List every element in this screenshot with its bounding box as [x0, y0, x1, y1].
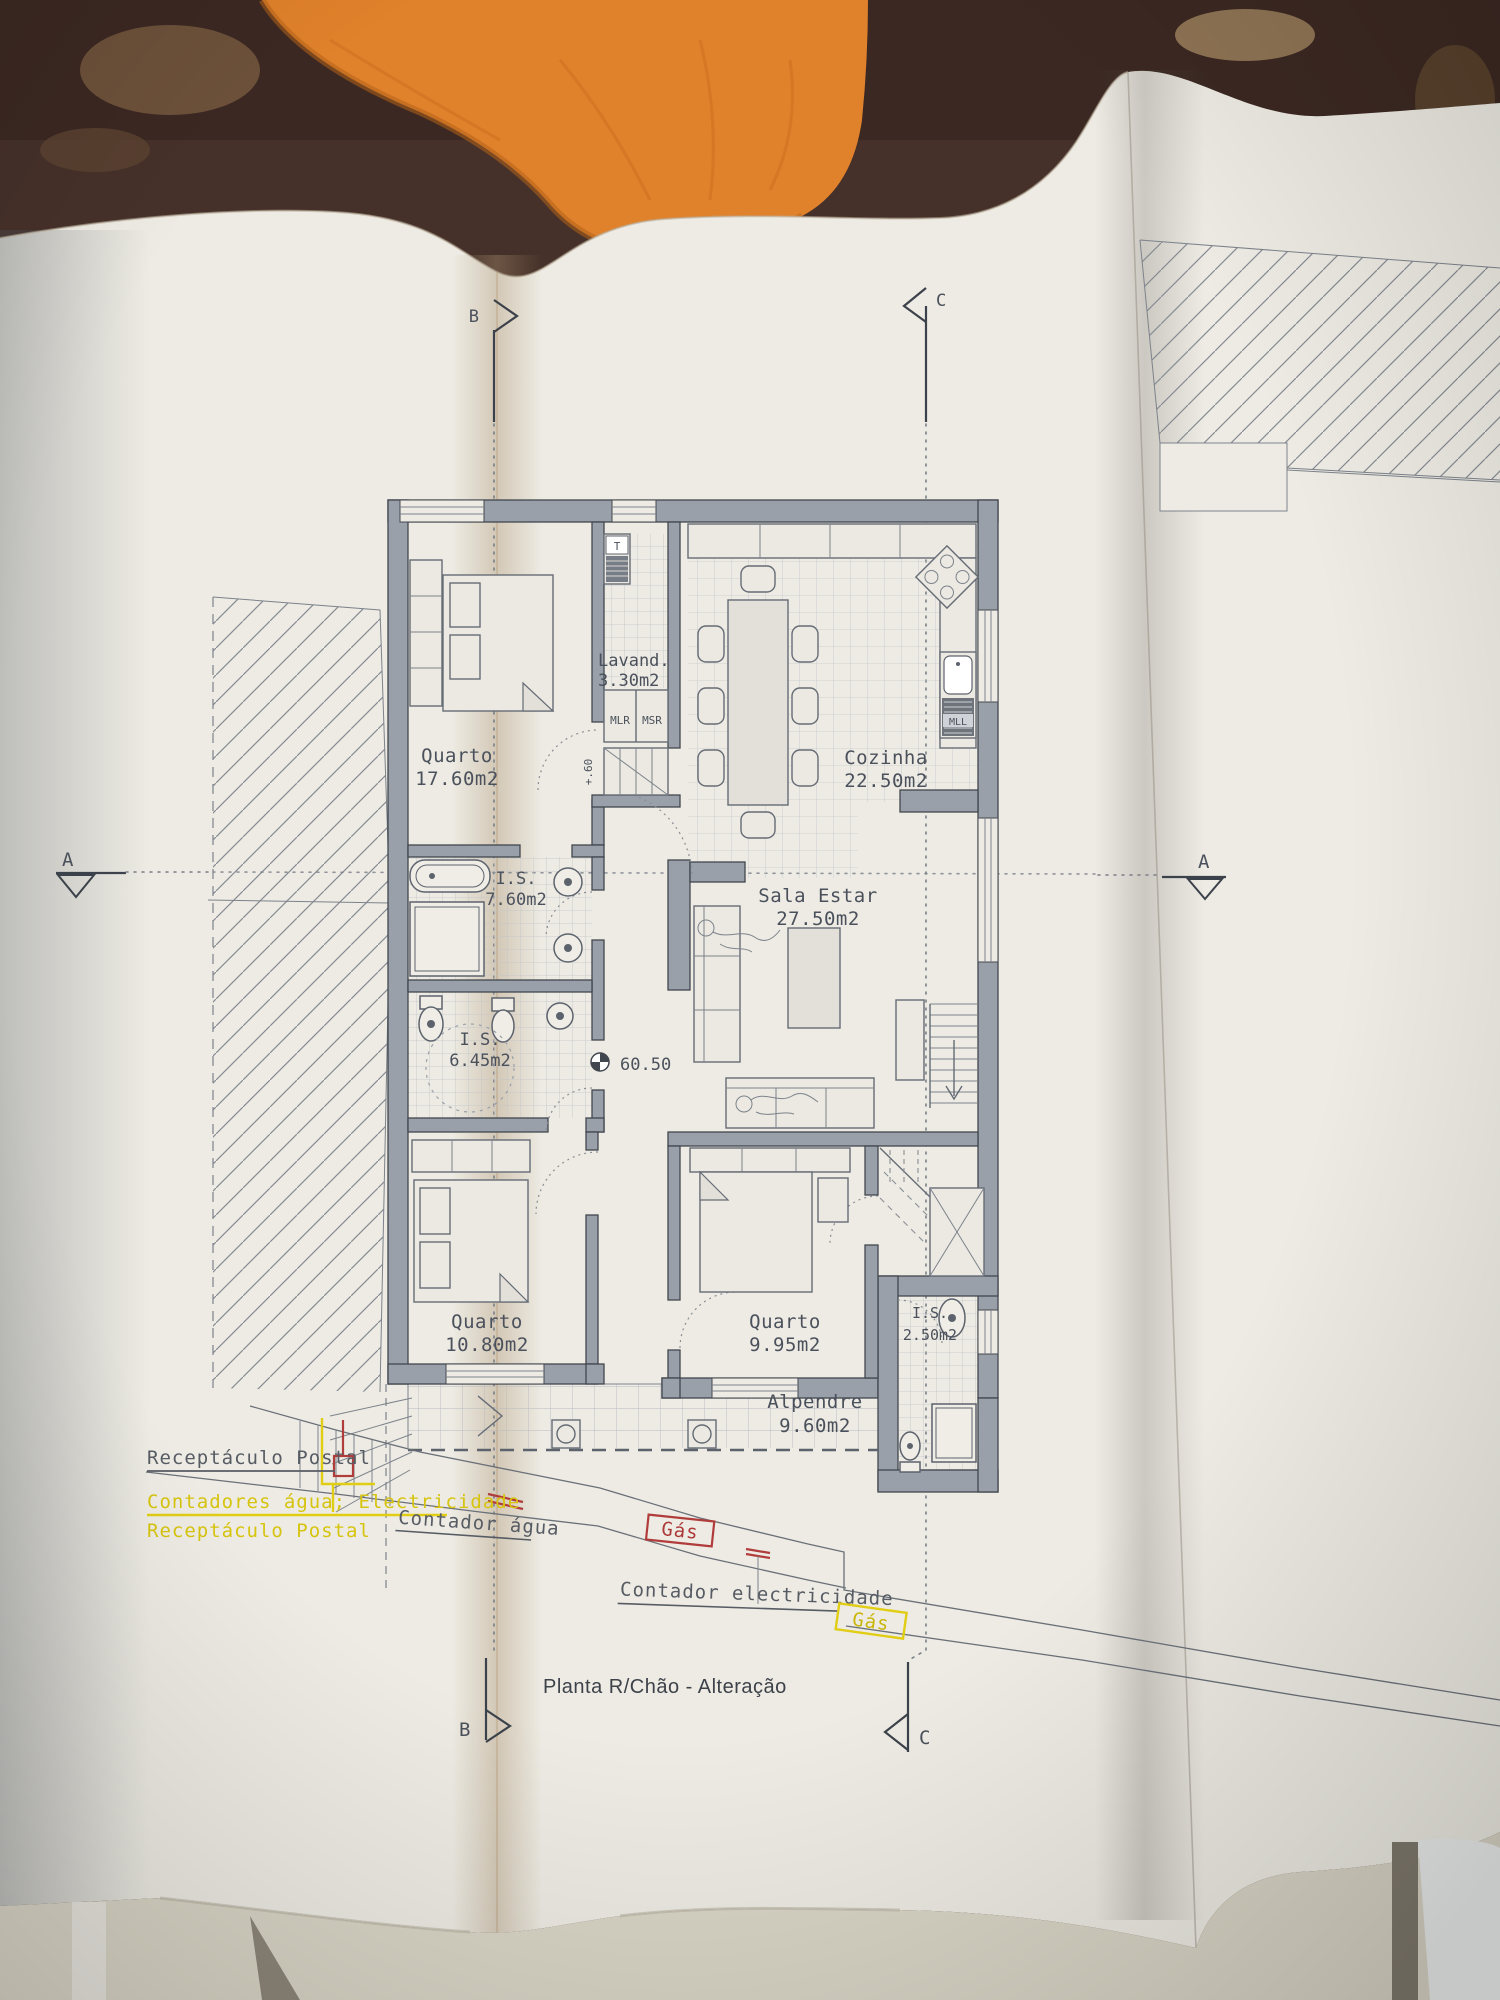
label-is1-area: 7.60m2 — [485, 890, 546, 910]
label-quarto1-name: Quarto — [421, 745, 493, 767]
water-heater: T — [604, 534, 630, 584]
porch-column-2 — [688, 1420, 716, 1448]
photo-of-floor-plan: B C A A B C — [0, 0, 1500, 2000]
marker-b-bottom-label: B — [459, 1719, 471, 1741]
label-is3-area: 2.50m2 — [903, 1326, 957, 1344]
label-sala-name: Sala Estar — [758, 885, 877, 907]
label-is2-name: I.S. — [460, 1030, 501, 1050]
label-quarto1-area: 17.60m2 — [415, 768, 499, 790]
sofa-bottom — [726, 1078, 874, 1128]
gas-red-label: Gás — [660, 1518, 699, 1544]
kitchen-sink-mll: MLL — [940, 652, 976, 738]
annotation-receptaculo-postal: Receptáculo Postal — [147, 1447, 371, 1469]
label-quarto2-area: 10.80m2 — [445, 1334, 529, 1356]
label-is1-name: I.S. — [496, 869, 537, 889]
hatch-area-left — [208, 597, 392, 1392]
label-lavandaria-name: Lavand. — [598, 651, 670, 671]
marker-b-top-label: B — [469, 307, 479, 327]
shower-2 — [932, 1404, 976, 1462]
appliance-mll-label: MLL — [949, 717, 967, 728]
quarto1-furniture — [410, 560, 553, 711]
label-cozinha-name: Cozinha — [844, 747, 928, 769]
sideboard — [896, 1000, 924, 1080]
kitchen-counter-top — [688, 524, 976, 558]
coffee-table — [788, 928, 840, 1028]
label-cozinha-area: 22.50m2 — [844, 770, 928, 792]
label-alpendre-area: 9.60m2 — [779, 1415, 851, 1437]
label-quarto2-name: Quarto — [451, 1311, 523, 1333]
window-is3 — [978, 1310, 998, 1354]
window-quarto2 — [446, 1364, 544, 1384]
annotation-contadores: Contadores água; Electricidade — [147, 1491, 520, 1513]
drawing-title: Planta R/Chão - Alteração — [543, 1676, 787, 1698]
label-quarto3-area: 9.95m2 — [749, 1334, 821, 1356]
appliance-msr-label: MSR — [642, 714, 662, 727]
label-is3-name: I.S. — [912, 1304, 948, 1322]
step-height-label: +.60 — [582, 759, 595, 786]
label-quarto3-name: Quarto — [749, 1311, 821, 1333]
quarto2-furniture — [412, 1140, 530, 1302]
label-lavandaria-area: 3.30m2 — [598, 671, 659, 691]
window-quarto1 — [400, 500, 484, 522]
floor-plan-svg: B C A A B C — [0, 0, 1500, 2000]
label-alpendre-name: Alpendre — [767, 1391, 863, 1413]
label-is2-area: 6.45m2 — [449, 1051, 510, 1071]
marker-a-left-label: A — [62, 849, 74, 871]
window-lavandaria — [612, 500, 656, 522]
marker-c-bottom-label: C — [919, 1727, 931, 1749]
marker-c-top-label: C — [936, 291, 946, 311]
window-sala — [978, 818, 998, 962]
label-sala-area: 27.50m2 — [776, 908, 860, 930]
washing-machines: MLR MSR — [604, 690, 668, 742]
level-value: 60.50 — [620, 1055, 671, 1075]
marker-a-right-label: A — [1198, 851, 1210, 873]
appliance-t-label: T — [614, 540, 621, 553]
porch-column-1 — [552, 1420, 580, 1448]
shower — [410, 902, 484, 976]
hatch-area-top-right — [1140, 240, 1500, 511]
sofa-left — [694, 906, 740, 1062]
window-cozinha — [978, 610, 998, 702]
annotation-receptaculo-yellow: Receptáculo Postal — [147, 1520, 371, 1542]
appliance-mlr-label: MLR — [610, 714, 630, 727]
